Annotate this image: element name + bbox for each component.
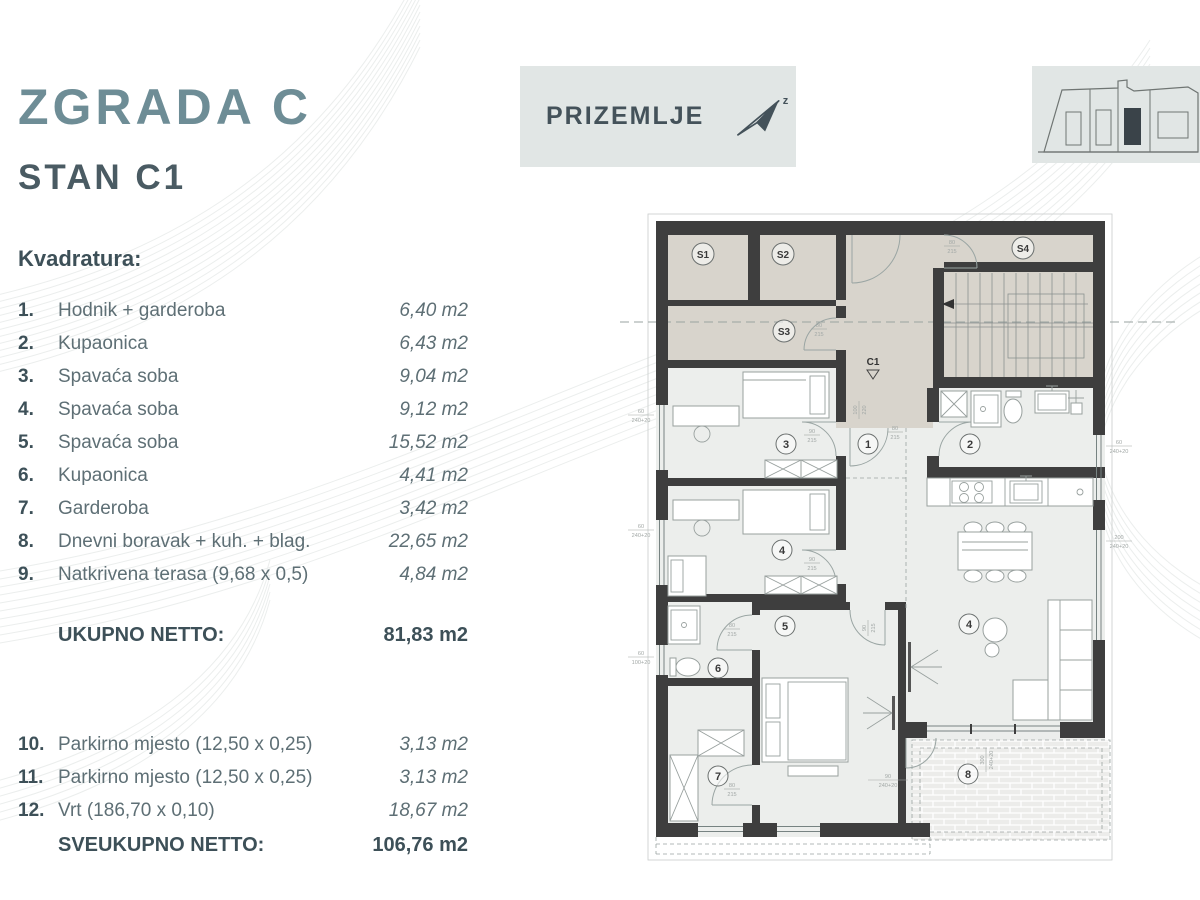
list-item: 2.Kupaonica6,43 m2: [18, 333, 468, 366]
svg-text:215: 215: [727, 792, 736, 798]
ukupno-total: UKUPNO NETTO: 81,83 m2: [18, 624, 468, 647]
sveukupno-value: 106,76 m2: [338, 834, 468, 857]
north-arrow-icon: z: [726, 86, 796, 148]
item-area: 6,40 m2: [356, 300, 468, 333]
extras-list: 10.Parkirno mjesto (12,50 x 0,25)3,13 m2…: [18, 734, 468, 833]
entrance-label: C1: [867, 357, 880, 368]
room-list: 1.Hodnik + garderoba6,40 m2 2.Kupaonica6…: [18, 300, 468, 597]
highlighted-unit: [1124, 108, 1141, 145]
list-item: 9.Natkrivena terasa (9,68 x 0,5)4,84 m2: [18, 564, 468, 597]
site-plan-icon: [1032, 66, 1200, 163]
svg-text:215: 215: [727, 632, 736, 638]
svg-text:90: 90: [809, 557, 815, 563]
svg-text:90: 90: [809, 429, 815, 435]
dining-table: [958, 522, 1032, 582]
floor-label: PRIZEMLJE: [546, 102, 704, 131]
svg-text:240+20: 240+20: [1110, 544, 1129, 550]
sveukupno-label: SVEUKUPNO NETTO:: [58, 834, 338, 857]
svg-text:100+20: 100+20: [632, 660, 651, 666]
svg-text:80: 80: [949, 240, 955, 246]
list-item: 6.Kupaonica4,41 m2: [18, 465, 468, 498]
room-circle: 1: [865, 439, 871, 451]
svg-text:240+20: 240+20: [1110, 449, 1129, 455]
kvadratura-heading: Kvadratura:: [18, 246, 141, 272]
room-circle: 5: [782, 621, 788, 633]
label-s2: S2: [777, 250, 790, 261]
list-item: 11.Parkirno mjesto (12,50 x 0,25)3,13 m2: [18, 767, 468, 800]
room-circle: 4: [966, 619, 973, 631]
apartment-subtitle: STAN C1: [18, 158, 186, 198]
list-item: 4.Spavaća soba9,12 m2: [18, 399, 468, 432]
item-name: Hodnik + garderoba: [58, 300, 356, 333]
label-s1: S1: [697, 250, 710, 261]
room-circle: 2: [967, 439, 973, 451]
svg-text:200: 200: [1114, 535, 1123, 541]
svg-text:60: 60: [638, 524, 644, 530]
list-item: 1.Hodnik + garderoba6,40 m2: [18, 300, 468, 333]
ukupno-label: UKUPNO NETTO:: [58, 624, 338, 647]
item-number: 1.: [18, 300, 58, 333]
floor-plan: S1 S2 S3 S4 C1 3 1 2 4 5 6 7 4 8 80215 8…: [620, 210, 1180, 890]
list-item: 12.Vrt (186,70 x 0,10)18,67 m2: [18, 800, 468, 833]
north-letter: z: [783, 95, 789, 107]
list-item: 8.Dnevni boravak + kuh. + blag.22,65 m2: [18, 531, 468, 564]
svg-text:215: 215: [807, 566, 816, 572]
svg-text:215: 215: [890, 435, 899, 441]
svg-text:240+20: 240+20: [632, 418, 651, 424]
svg-text:215: 215: [947, 249, 956, 255]
label-s3: S3: [778, 327, 791, 338]
list-item: 3.Spavaća soba9,04 m2: [18, 366, 468, 399]
svg-text:60: 60: [1116, 440, 1122, 446]
svg-text:215: 215: [871, 623, 877, 632]
label-s4: S4: [1017, 244, 1030, 255]
page-title: ZGRADA C: [18, 78, 312, 136]
svg-text:90: 90: [885, 774, 891, 780]
svg-text:240+20: 240+20: [879, 783, 898, 789]
svg-text:240+20: 240+20: [989, 751, 995, 770]
svg-text:60: 60: [638, 409, 644, 415]
room-circle: 7: [715, 771, 721, 783]
list-item: 10.Parkirno mjesto (12,50 x 0,25)3,13 m2: [18, 734, 468, 767]
svg-text:80: 80: [892, 426, 898, 432]
svg-text:60: 60: [638, 651, 644, 657]
ukupno-value: 81,83 m2: [338, 624, 468, 647]
svg-text:240+20: 240+20: [632, 533, 651, 539]
floorplan-sheet: ZGRADA C STAN C1 Kvadratura: 1.Hodnik + …: [0, 0, 1200, 900]
sveukupno-total: SVEUKUPNO NETTO: 106,76 m2: [18, 834, 468, 857]
covered-terrace-strip: [656, 837, 930, 854]
room-circle: 8: [965, 769, 971, 781]
svg-text:220: 220: [862, 405, 868, 414]
svg-text:80: 80: [729, 783, 735, 789]
furniture-bathroom6: [668, 606, 700, 676]
list-item: 5.Spavaća soba15,52 m2: [18, 432, 468, 465]
svg-text:80: 80: [729, 623, 735, 629]
terrace: [912, 740, 1110, 840]
svg-text:300: 300: [980, 755, 986, 764]
svg-text:215: 215: [814, 332, 823, 338]
svg-text:100: 100: [853, 405, 859, 414]
svg-text:80: 80: [816, 323, 822, 329]
room-circle: 3: [783, 439, 789, 451]
kitchen-counter: [927, 476, 1093, 506]
room-circle: 6: [715, 663, 721, 675]
svg-text:90: 90: [862, 625, 868, 631]
room-circle: 4: [779, 545, 786, 557]
floor-banner: PRIZEMLJE z: [520, 66, 796, 167]
list-item: 7.Garderoba3,42 m2: [18, 498, 468, 531]
svg-text:215: 215: [807, 438, 816, 444]
